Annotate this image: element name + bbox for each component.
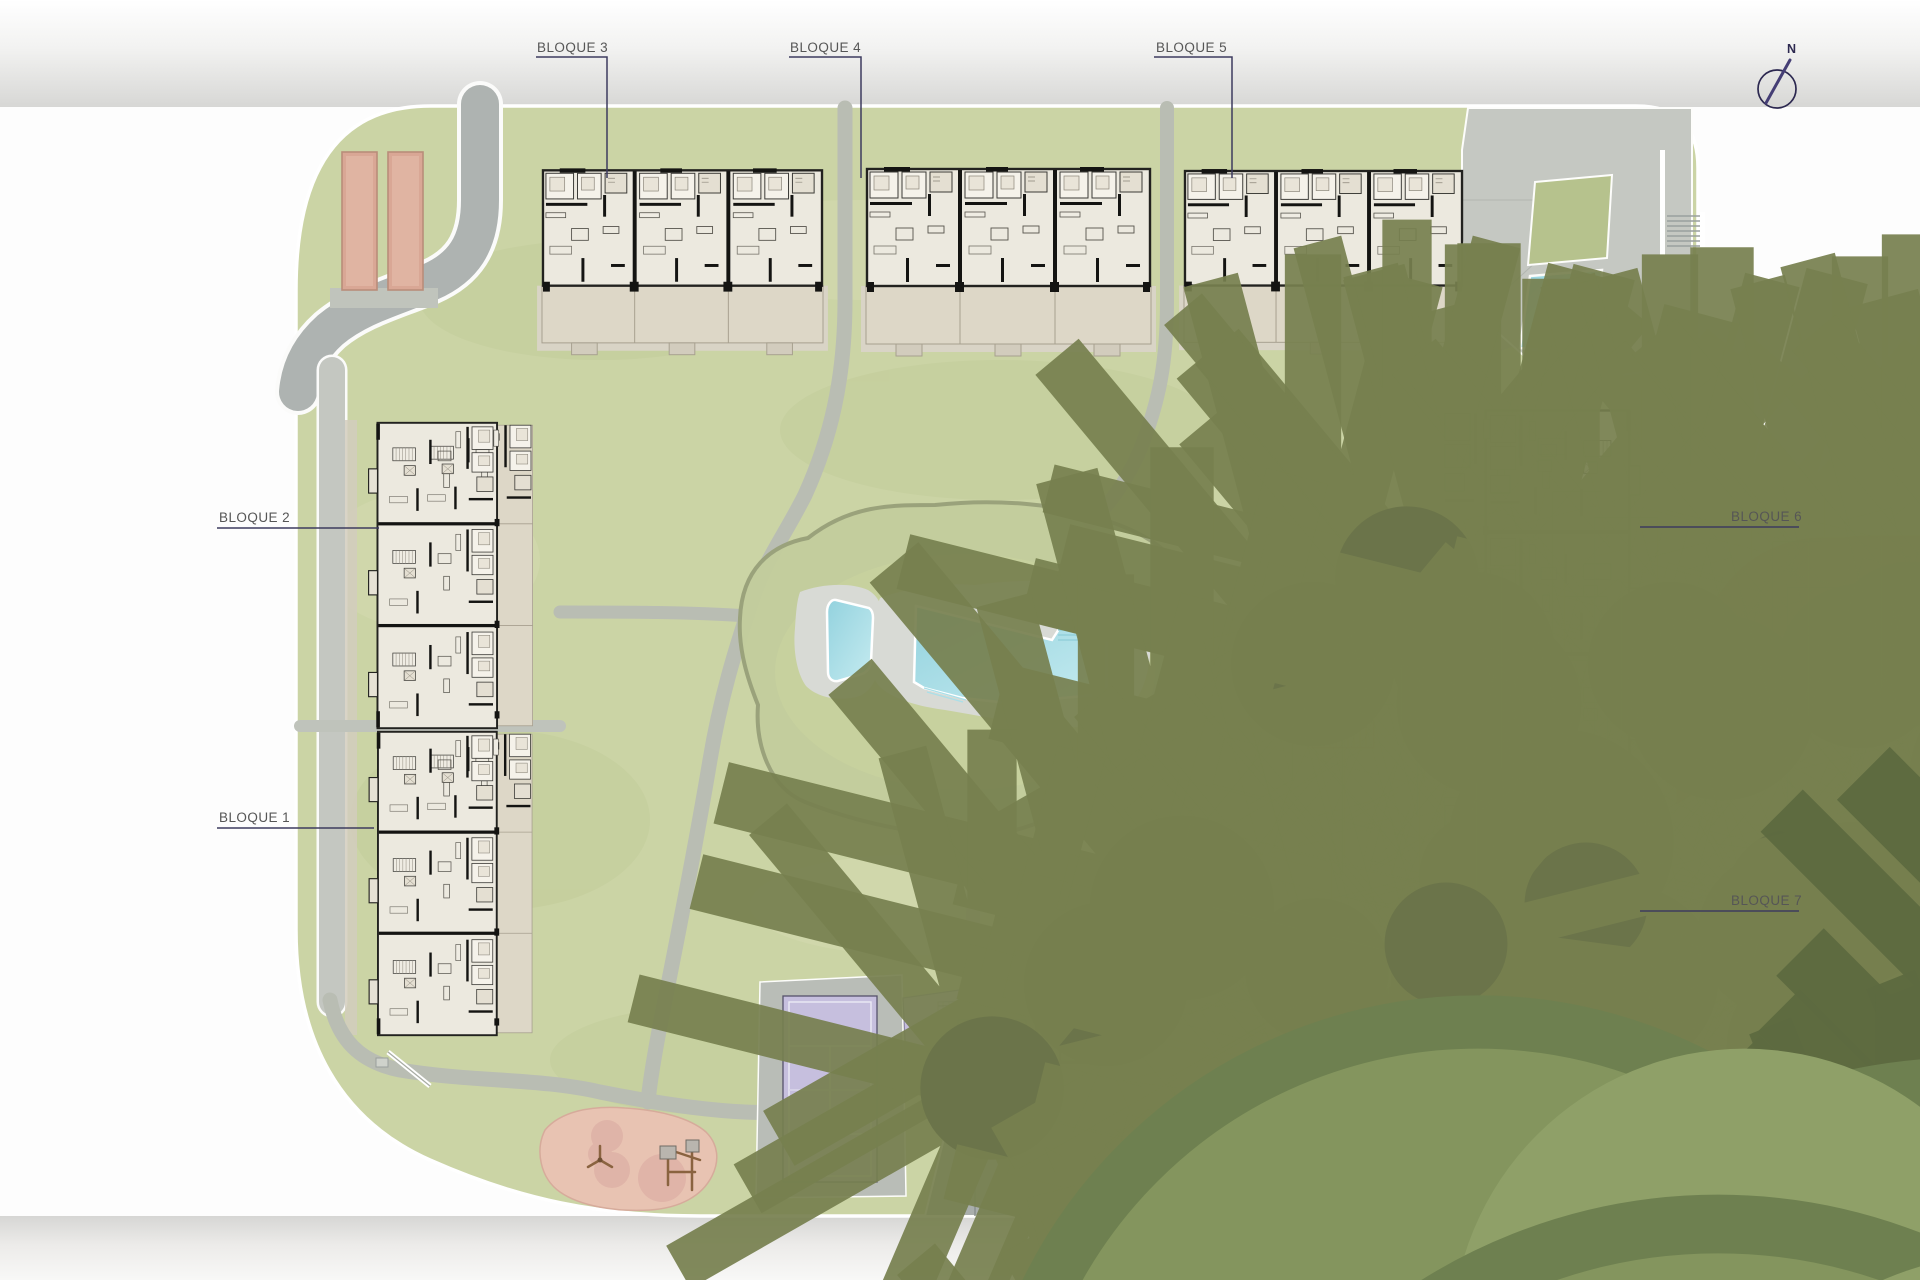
north-compass xyxy=(1758,60,1796,108)
building-bloque-4 xyxy=(861,167,1156,356)
building-bloque-2 xyxy=(369,423,533,728)
site-plan-canvas: BLOQUE 3 BLOQUE 4 BLOQUE 5 BLOQUE 2 BLOQ… xyxy=(0,0,1920,1280)
building-bloque-3 xyxy=(537,168,828,354)
label-bloque-4: BLOQUE 4 xyxy=(790,40,861,55)
building-bloque-1 xyxy=(369,732,532,1035)
label-bloque-2: BLOQUE 2 xyxy=(219,510,290,525)
site-map xyxy=(0,0,1920,1280)
label-bloque-3: BLOQUE 3 xyxy=(537,40,608,55)
north-label: N xyxy=(1787,42,1796,56)
label-bloque-7: BLOQUE 7 xyxy=(1731,893,1802,908)
label-bloque-5: BLOQUE 5 xyxy=(1156,40,1227,55)
label-bloque-6: BLOQUE 6 xyxy=(1731,509,1802,524)
label-bloque-1: BLOQUE 1 xyxy=(219,810,290,825)
